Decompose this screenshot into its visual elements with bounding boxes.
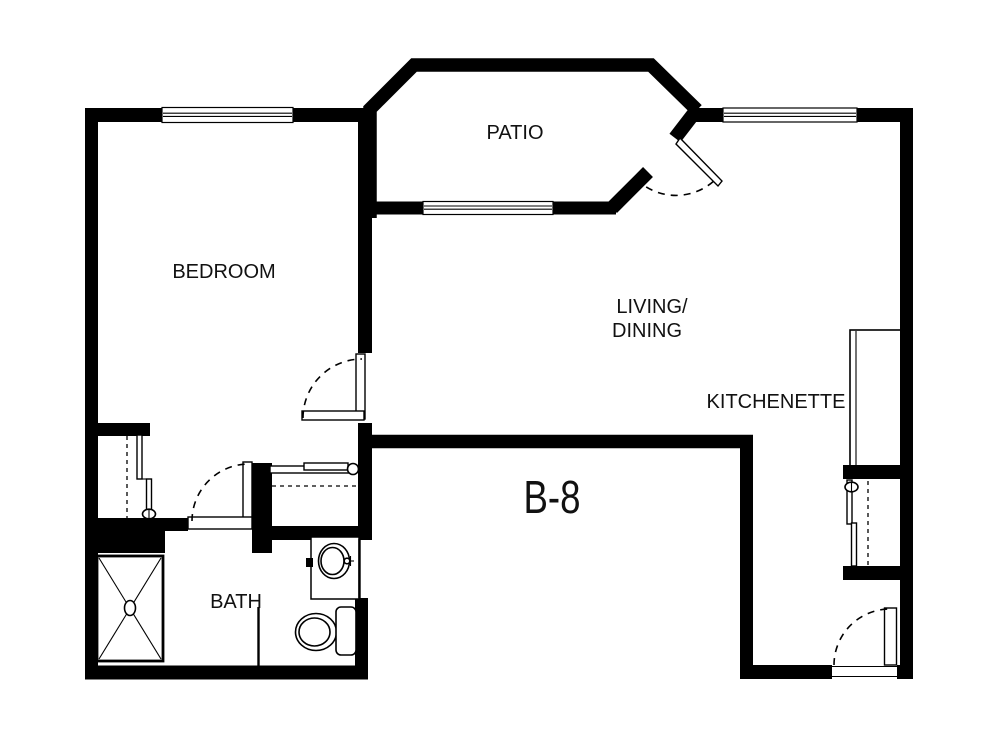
- hall-closet: [270, 463, 360, 486]
- living-window: [723, 108, 857, 122]
- closet-top-stub-wall: [85, 423, 150, 436]
- room-label-kitchenette: KITCHENETTE: [707, 391, 846, 413]
- shower-drain-icon: [125, 601, 136, 616]
- bath-door: [188, 462, 252, 529]
- room-label-patio: PATIO: [486, 122, 543, 144]
- room-label-living: LIVING/: [616, 296, 688, 318]
- kitchenette-closet-bottom-wall: [843, 566, 901, 580]
- toilet-tank: [336, 607, 356, 655]
- closet-rod-end-icon: [348, 464, 359, 475]
- floor-plan: PATIO BEDROOM LIVING/ DINING KITCHENETTE…: [0, 0, 995, 740]
- room-label-bedroom: BEDROOM: [172, 261, 275, 283]
- fixtures: [97, 330, 901, 667]
- bedroom-door: [302, 354, 365, 420]
- patio-door-jamb-upper: [675, 112, 695, 138]
- bedroom-window: [162, 108, 293, 123]
- walls: [85, 65, 913, 680]
- floor-plan-drawing: PATIO BEDROOM LIVING/ DINING KITCHENETTE…: [0, 0, 995, 740]
- entry-closet: [845, 480, 868, 566]
- faucet-icon: [344, 558, 350, 564]
- kitchenette-counter: [850, 330, 901, 467]
- toilet: [296, 607, 357, 655]
- bath-top-wall-left: [85, 518, 165, 553]
- room-label-dining: DINING: [612, 320, 682, 342]
- hall-closet-stub-wall: [252, 463, 272, 553]
- shower: [97, 556, 163, 661]
- entry-door: [832, 608, 897, 680]
- unit-label: B-8: [524, 471, 581, 523]
- vanity-counter: [306, 537, 360, 599]
- bath-top-wall-left-b: [165, 518, 188, 531]
- patio-door-jamb-lower: [612, 172, 648, 208]
- towel-bar-bracket-icon: [306, 558, 313, 567]
- patio-window: [423, 202, 553, 215]
- patio-door: [636, 138, 722, 195]
- room-label-bath: BATH: [210, 591, 262, 613]
